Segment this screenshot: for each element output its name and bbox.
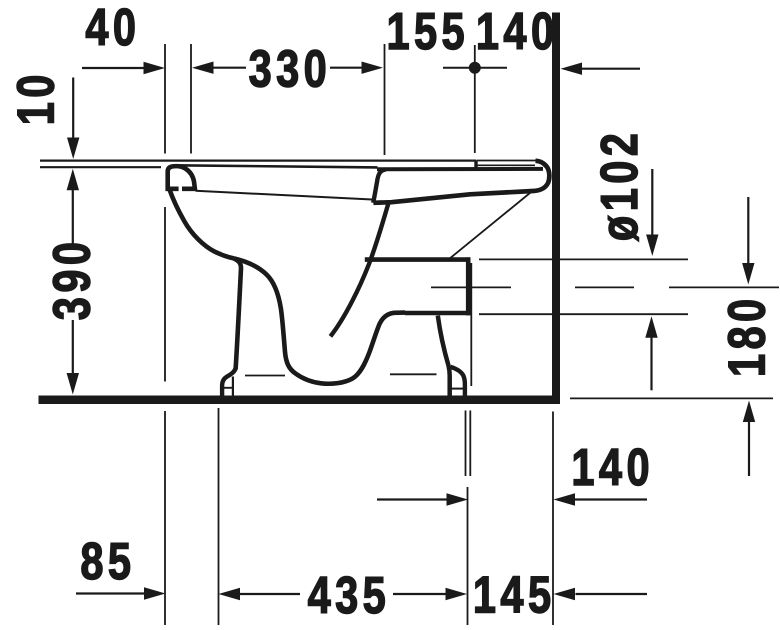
svg-text:140: 140 [571, 438, 654, 497]
svg-text:435: 435 [308, 565, 391, 624]
svg-text:85: 85 [80, 532, 135, 591]
svg-text:40: 40 [85, 0, 140, 56]
svg-text:155: 155 [386, 2, 469, 61]
svg-text:140: 140 [476, 2, 559, 61]
svg-text:10: 10 [6, 70, 65, 125]
svg-text:145: 145 [473, 565, 556, 624]
svg-text:330: 330 [249, 39, 332, 98]
svg-text:390: 390 [42, 238, 101, 321]
svg-text:180: 180 [717, 294, 776, 377]
svg-text:ø102: ø102 [589, 129, 648, 241]
